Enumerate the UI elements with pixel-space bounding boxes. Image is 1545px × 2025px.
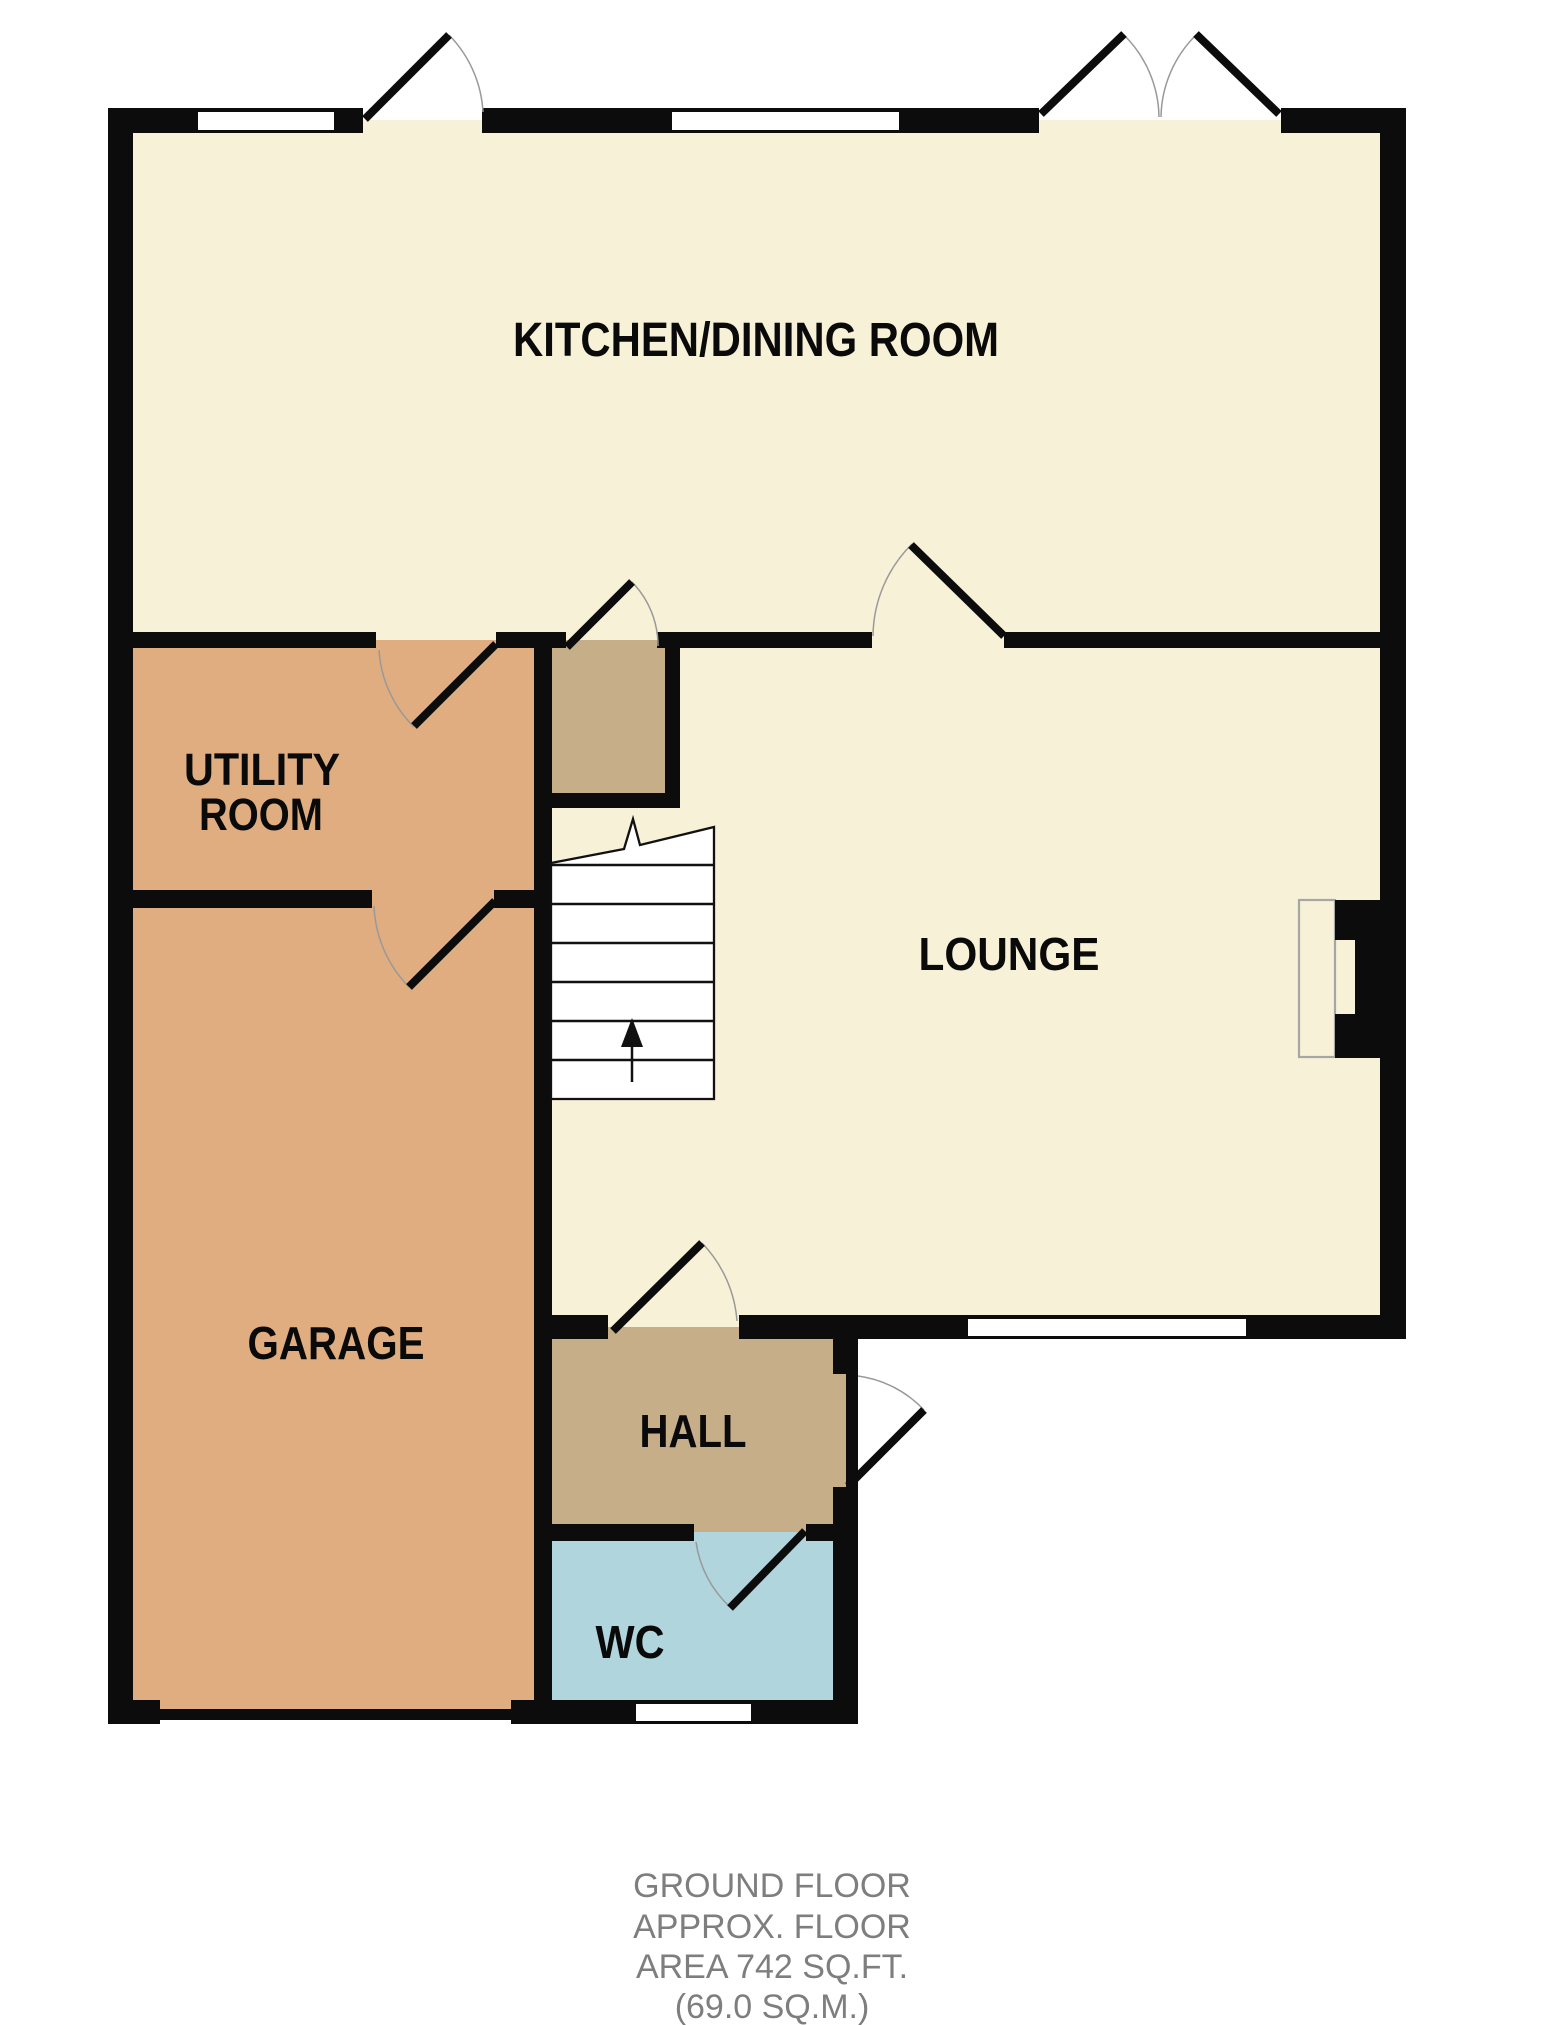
svg-text:UTILITY: UTILITY — [184, 744, 340, 795]
svg-text:LOUNGE: LOUNGE — [919, 928, 1100, 980]
svg-text:AREA 742 SQ.FT.: AREA 742 SQ.FT. — [636, 1948, 908, 1986]
svg-text:GROUND FLOOR: GROUND FLOOR — [633, 1867, 911, 1905]
svg-text:APPROX. FLOOR: APPROX. FLOOR — [633, 1908, 911, 1946]
svg-text:KITCHEN/DINING ROOM: KITCHEN/DINING ROOM — [513, 314, 999, 367]
svg-text:GARAGE: GARAGE — [248, 1317, 425, 1369]
svg-text:HALL: HALL — [640, 1405, 747, 1457]
svg-text:ROOM: ROOM — [199, 789, 323, 840]
svg-text:(69.0 SQ.M.): (69.0 SQ.M.) — [675, 1988, 870, 2025]
svg-text:WC: WC — [596, 1616, 665, 1668]
